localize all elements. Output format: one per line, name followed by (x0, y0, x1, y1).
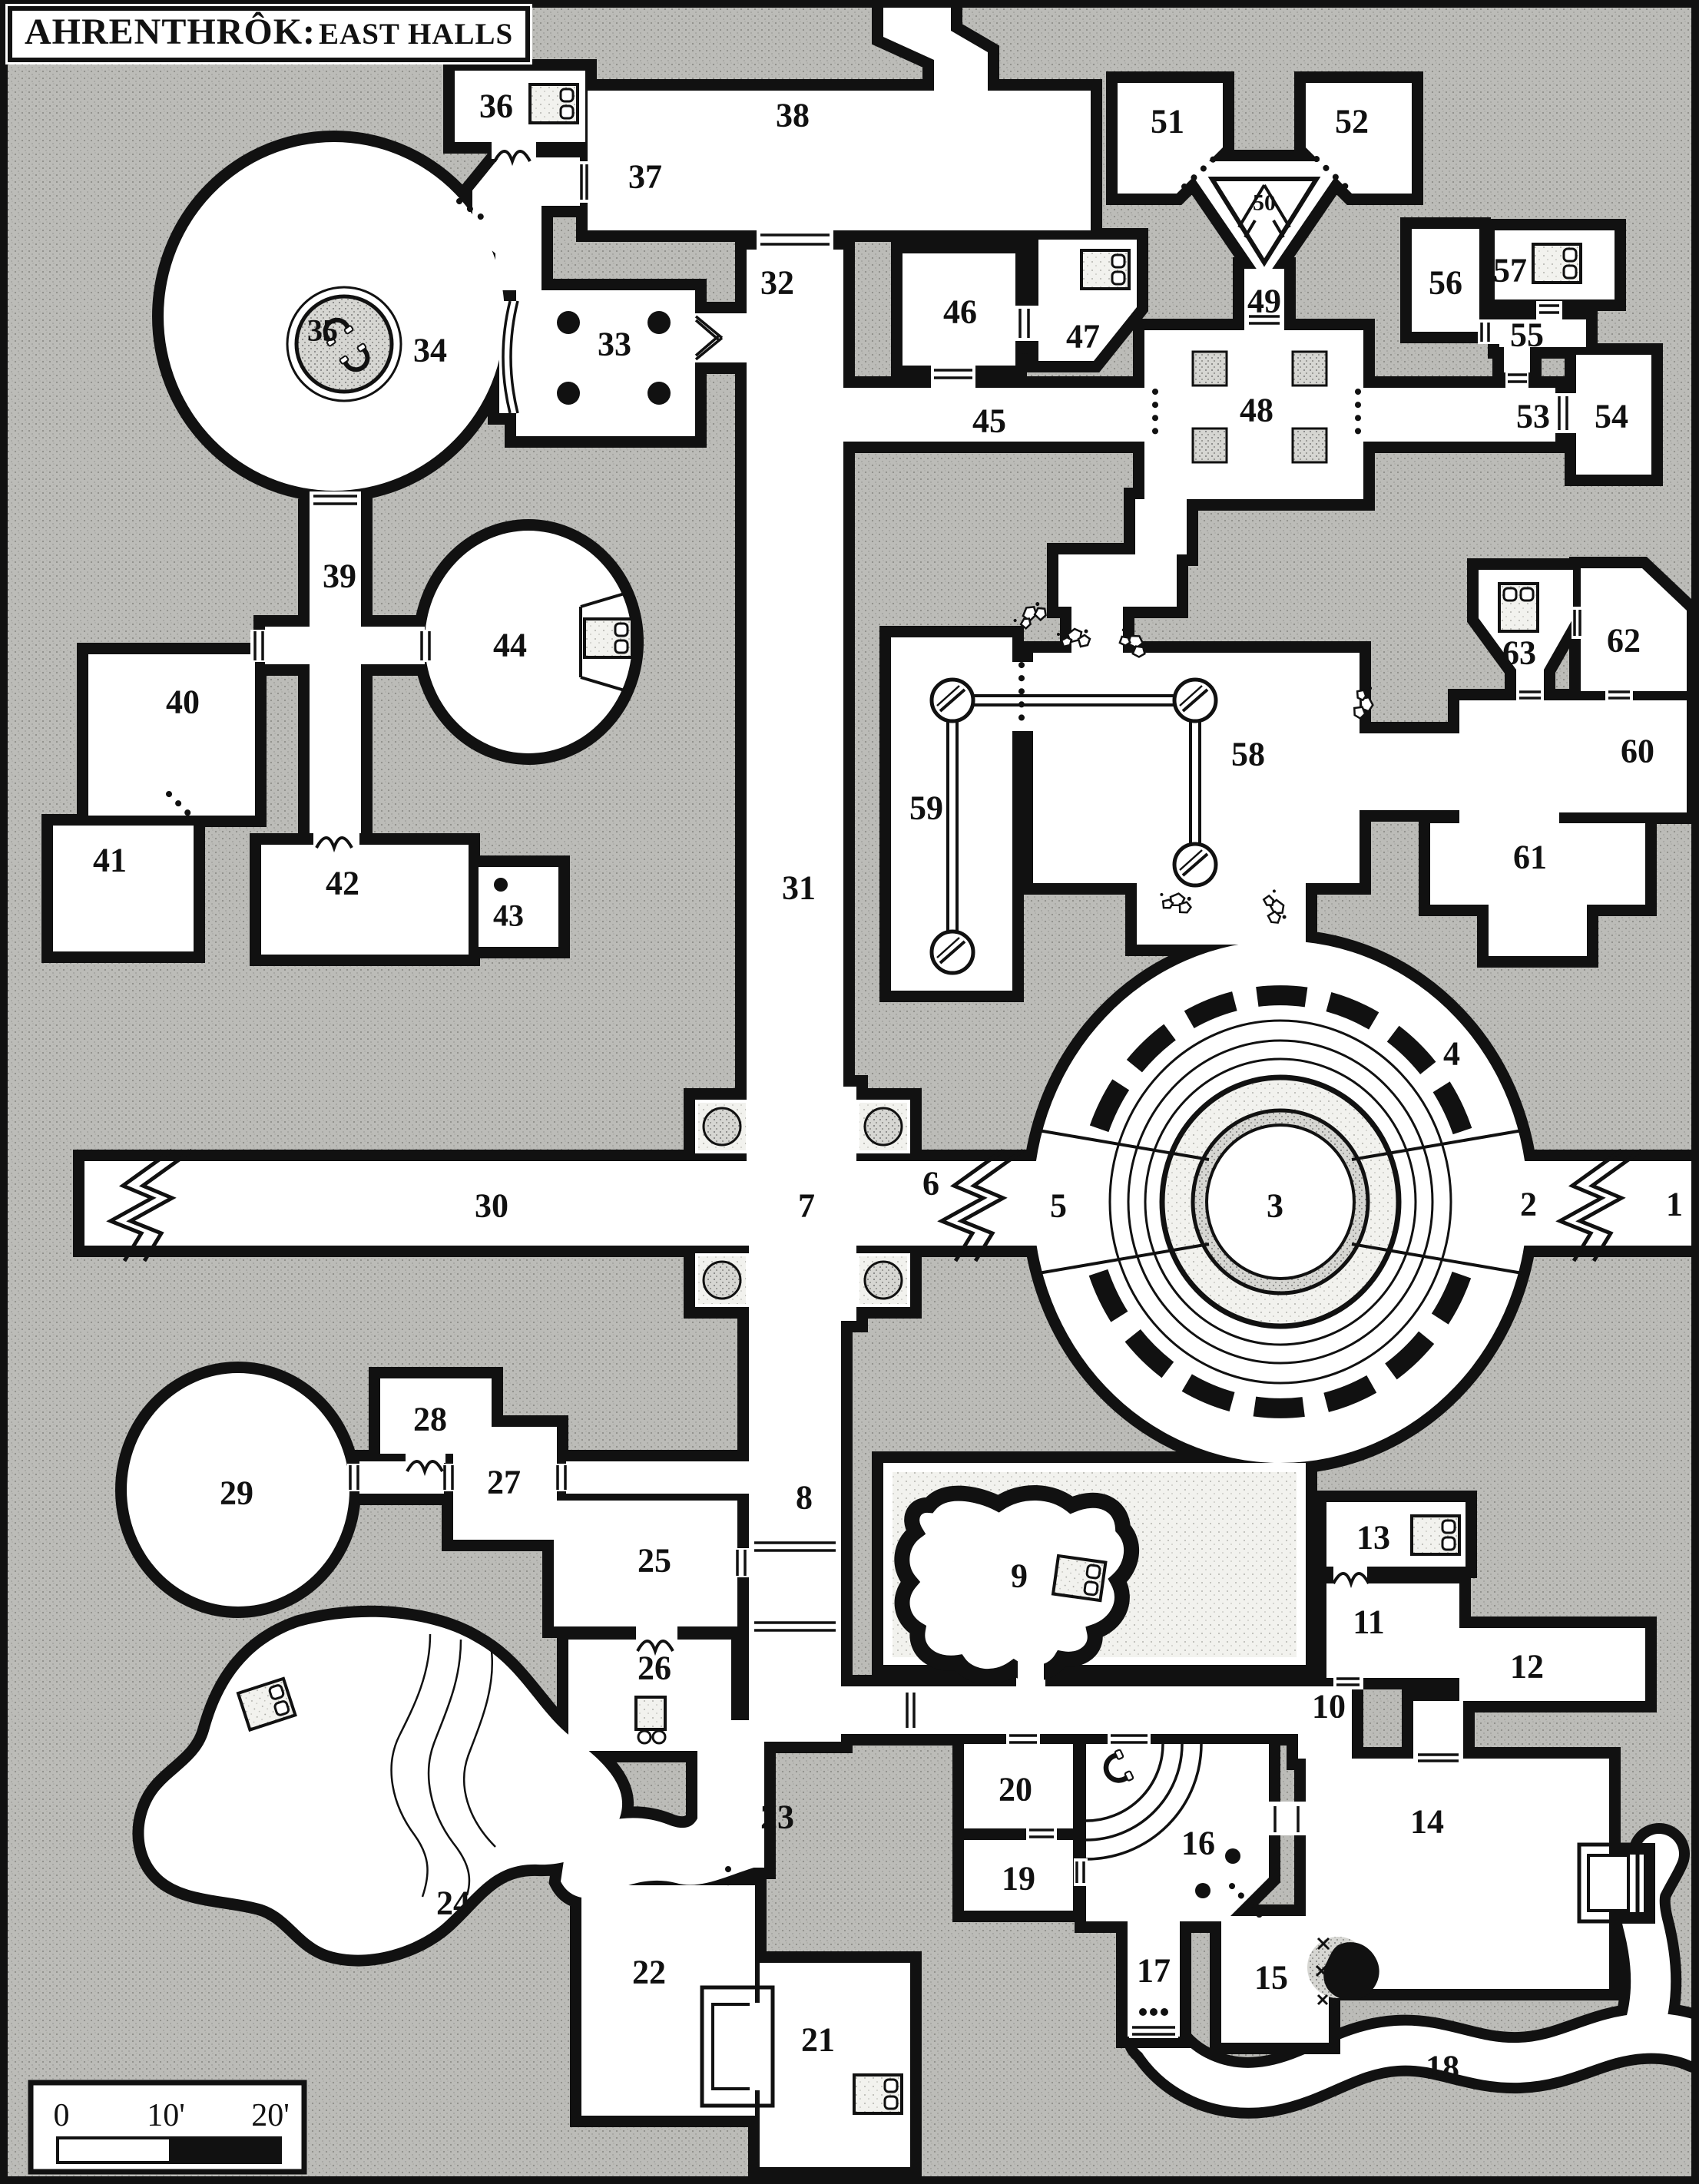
bed-icon (1081, 250, 1129, 289)
room-label-41: 41 (93, 842, 127, 879)
room-label-27: 27 (487, 1464, 521, 1501)
room-label-24: 24 (436, 1885, 470, 1922)
room-label-35: 35 (307, 313, 338, 348)
room-label-18: 18 (1426, 2049, 1459, 2086)
room-label-61: 61 (1513, 839, 1547, 876)
scale-tick-10: 10' (147, 2098, 185, 2133)
scale-tick-20: 20' (251, 2098, 290, 2133)
fallen-column-icon (932, 932, 973, 973)
room-label-6: 6 (922, 1165, 939, 1203)
bed-icon (530, 84, 578, 123)
room-label-60: 60 (1621, 733, 1654, 770)
room-label-47: 47 (1066, 318, 1100, 356)
room-label-13: 13 (1356, 1519, 1390, 1557)
fallen-column-icon (1174, 680, 1216, 721)
room-label-17: 17 (1137, 1952, 1171, 1990)
room-label-3: 3 (1267, 1187, 1283, 1225)
room-label-26: 26 (638, 1650, 671, 1687)
room-label-39: 39 (323, 558, 356, 595)
dungeon-map-page: { "title": { "main": "AHRENTHRÔK:", "sub… (0, 0, 1699, 2184)
room-label-37: 37 (628, 158, 662, 196)
room-label-2: 2 (1520, 1186, 1537, 1223)
room-label-30: 30 (475, 1187, 508, 1225)
room-label-46: 46 (943, 293, 977, 331)
room-label-49: 49 (1247, 283, 1281, 320)
room-label-33: 33 (598, 326, 631, 363)
room-label-45: 45 (972, 402, 1006, 440)
room-label-31: 31 (782, 869, 816, 907)
scale-tick-0: 0 (54, 2098, 70, 2133)
room-label-8: 8 (796, 1479, 813, 1517)
room-label-56: 56 (1429, 264, 1462, 302)
room-label-29: 29 (220, 1474, 253, 1512)
bed-icon (1533, 244, 1581, 283)
room-label-7: 7 (798, 1187, 815, 1225)
room-label-53: 53 (1516, 398, 1550, 435)
room-label-21: 21 (801, 2021, 835, 2059)
room-label-59: 59 (909, 789, 943, 827)
room-label-36: 36 (479, 88, 513, 125)
portcullis-dots (1139, 2008, 1168, 2016)
room-label-25: 25 (638, 1542, 671, 1580)
map-title-main: AHRENTHRÔK: (25, 12, 316, 52)
room-label-32: 32 (760, 264, 794, 302)
fallen-column-icon (1174, 844, 1216, 885)
bed-icon (1412, 1516, 1459, 1554)
dungeon-map: 0 10' 20' 123456789101112131415161718192… (0, 0, 1699, 2184)
room-label-23: 23 (760, 1798, 794, 1836)
map-title: AHRENTHRÔK: East Halls (8, 6, 530, 62)
room-label-1: 1 (1666, 1186, 1683, 1223)
room-label-19: 19 (1002, 1860, 1035, 1898)
room-label-5: 5 (1050, 1187, 1067, 1225)
chest-icon (636, 1697, 665, 1743)
fallen-column-icon (932, 680, 973, 721)
room-label-55: 55 (1510, 316, 1544, 354)
room-label-48: 48 (1240, 392, 1273, 429)
room-label-28: 28 (413, 1401, 447, 1438)
room-label-4: 4 (1443, 1035, 1460, 1073)
room-label-52: 52 (1335, 103, 1369, 141)
room-label-10: 10 (1312, 1688, 1346, 1726)
room-label-51: 51 (1151, 103, 1184, 141)
bed-icon (854, 2075, 902, 2113)
room-label-57: 57 (1493, 252, 1527, 290)
dais-room-35 (287, 287, 401, 401)
room-label-54: 54 (1595, 398, 1628, 435)
room-label-15: 15 (1254, 1959, 1288, 1997)
scale-bar: 0 10' 20' (31, 2083, 304, 2172)
room-label-22: 22 (632, 1954, 666, 1991)
room-label-44: 44 (493, 627, 527, 664)
bed-icon (585, 619, 632, 657)
room-label-42: 42 (326, 865, 359, 902)
room-label-20: 20 (999, 1771, 1032, 1808)
room-label-40: 40 (166, 683, 200, 721)
room-label-38: 38 (776, 97, 810, 134)
room-label-12: 12 (1510, 1648, 1544, 1686)
bed-icon (1053, 1556, 1105, 1600)
map-title-sub: East Halls (319, 18, 513, 51)
room-label-58: 58 (1231, 736, 1265, 773)
room-label-9: 9 (1011, 1557, 1028, 1595)
room-label-63: 63 (1502, 634, 1536, 672)
room-label-43: 43 (493, 898, 524, 933)
room-label-11: 11 (1353, 1603, 1385, 1641)
room-label-50: 50 (1253, 190, 1276, 216)
room-label-16: 16 (1181, 1825, 1215, 1862)
room-label-14: 14 (1410, 1803, 1444, 1841)
room-label-62: 62 (1607, 622, 1641, 660)
room-label-34: 34 (413, 332, 447, 369)
bed-icon (1499, 584, 1538, 631)
